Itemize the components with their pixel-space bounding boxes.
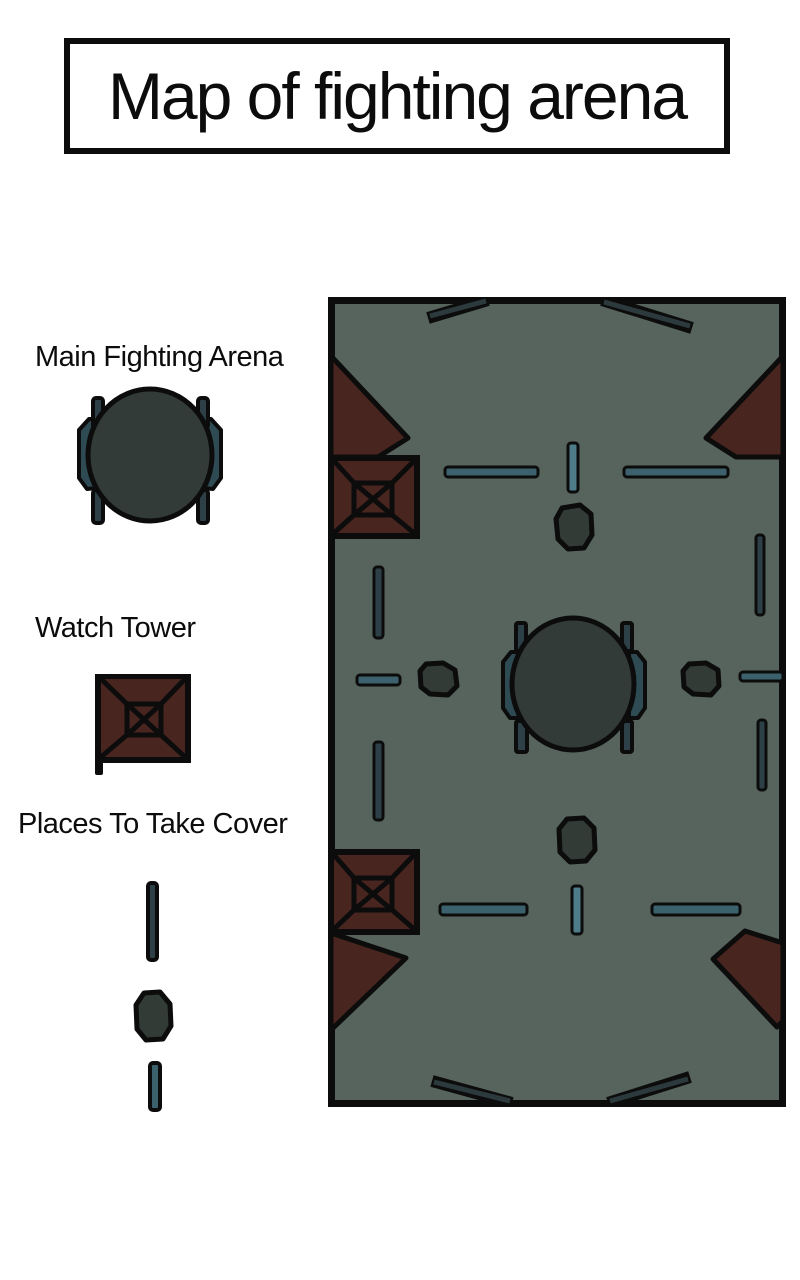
page: Map of fighting arena Main Fighting Aren… (0, 0, 800, 1280)
main-arena-legend-icon (70, 384, 230, 530)
watch-tower-bottom-left (331, 852, 417, 932)
cover-wall (440, 904, 527, 915)
cover-wall (357, 675, 400, 685)
arena-circle (88, 389, 212, 521)
cover-wall (374, 742, 383, 820)
cover-wall (758, 720, 766, 790)
arena-map (328, 297, 786, 1107)
central-arena (503, 618, 645, 752)
arena-circle (512, 618, 634, 750)
arena-post (622, 721, 632, 752)
tower-base-step (102, 758, 170, 763)
title-box: Map of fighting arena (64, 38, 730, 154)
cover-rock (420, 663, 457, 695)
watch-tower-top-left (331, 458, 417, 536)
legend-label-main-arena: Main Fighting Arena (35, 341, 283, 374)
cover-wall-icon-small (150, 1063, 160, 1110)
cover-rock-icon (136, 992, 171, 1040)
watch-tower-legend-icon (94, 674, 194, 776)
cover-rock (683, 663, 719, 695)
cover-wall (652, 904, 740, 915)
cover-wall (756, 535, 764, 615)
page-title: Map of fighting arena (108, 58, 686, 134)
cover-wall (740, 672, 783, 681)
cover-wall (624, 467, 728, 477)
legend-label-watch-tower: Watch Tower (35, 612, 196, 645)
cover-wall (374, 567, 383, 638)
cover-rock (556, 505, 592, 549)
cover-wall-icon (148, 883, 157, 960)
cover-wall (572, 886, 582, 934)
cover-wall (445, 467, 538, 477)
cover-wall (568, 443, 578, 492)
cover-legend-icons (127, 878, 181, 1118)
tower-roof (98, 676, 188, 763)
legend-label-cover: Places To Take Cover (18, 808, 287, 841)
cover-rock (559, 818, 595, 862)
